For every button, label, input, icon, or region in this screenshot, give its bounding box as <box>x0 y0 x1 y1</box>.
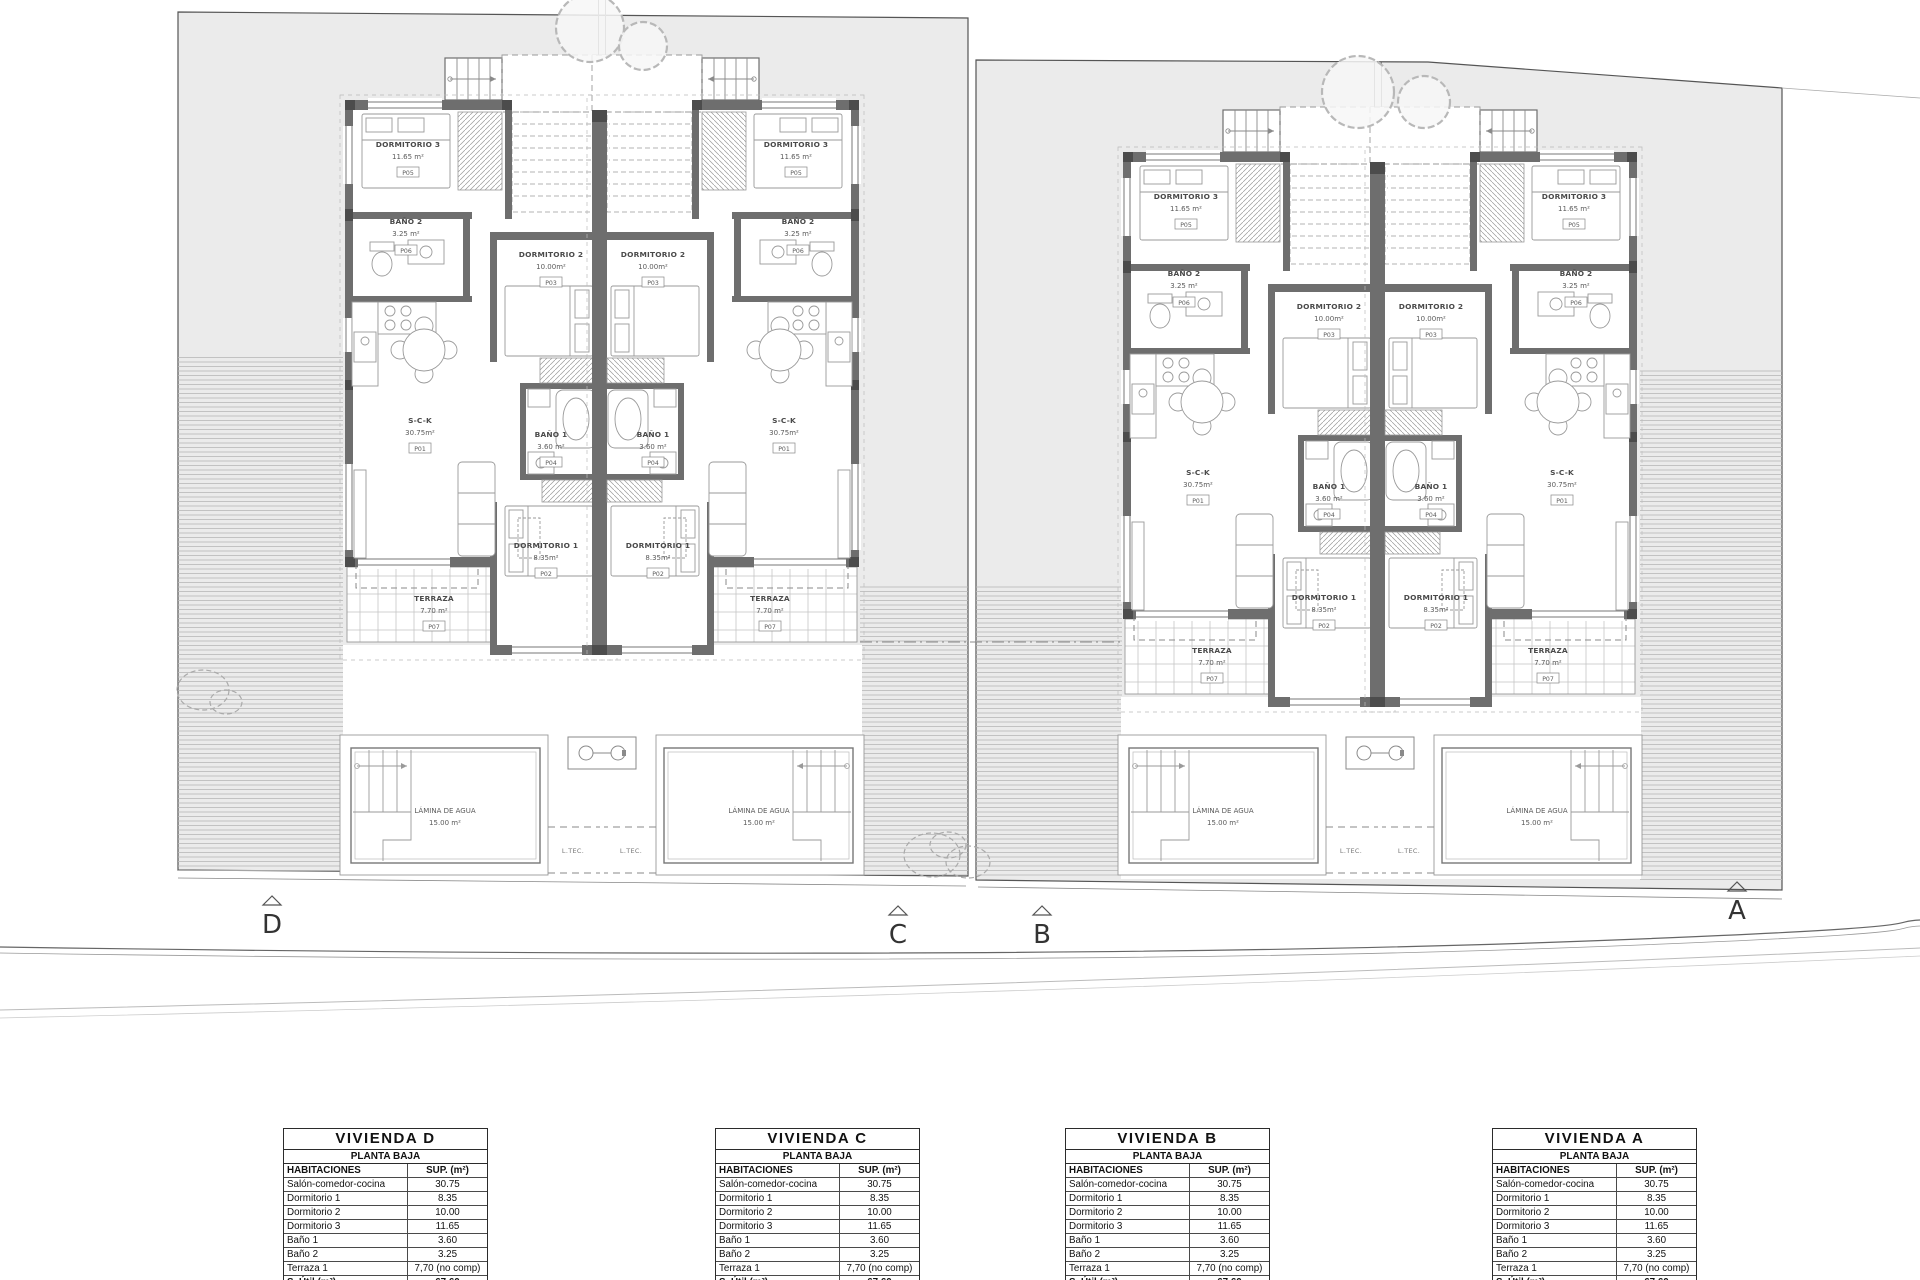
room-area: 3.25 m² <box>1170 282 1198 290</box>
room-label: S-C-K <box>1186 468 1210 477</box>
marker-triangle-icon <box>263 896 281 905</box>
room-tag: P06 <box>792 248 804 255</box>
table-row: Baño 13.60 <box>716 1234 919 1248</box>
room-sup-cell: 10.00 <box>1190 1206 1269 1219</box>
room-area: 8.35m² <box>645 554 670 562</box>
col-header-sup: SUP. (m²) <box>840 1164 919 1177</box>
ltec-label: L.TEC. <box>1398 847 1420 855</box>
room-name-cell: Dormitorio 2 <box>284 1206 408 1219</box>
room-sup-cell: 11.65 <box>1190 1220 1269 1233</box>
room-area: 30.75m² <box>1183 481 1213 489</box>
room-name-cell: Baño 2 <box>716 1248 840 1261</box>
table-title: VIVIENDA C <box>716 1129 919 1150</box>
room-label: DORMITORIO 2 <box>1399 302 1463 311</box>
table-row: Baño 23.25 <box>284 1248 487 1262</box>
room-label: S-C-K <box>408 416 432 425</box>
col-header-sup: SUP. (m²) <box>1617 1164 1696 1177</box>
table-row: Baño 13.60 <box>284 1234 487 1248</box>
room-name-cell: Baño 1 <box>716 1234 840 1247</box>
room-name-cell: Baño 1 <box>1493 1234 1617 1247</box>
col-header-habitaciones: HABITACIONES <box>1066 1164 1190 1177</box>
table-row: Terraza 17,70 (no comp) <box>1066 1262 1269 1276</box>
room-sup-cell: 11.65 <box>1617 1220 1696 1233</box>
total-label-cell: S. Útil (m²) <box>1493 1276 1617 1280</box>
table-row: Baño 13.60 <box>1066 1234 1269 1248</box>
section-markers: D C B A <box>262 882 1746 950</box>
tree-icon <box>1398 76 1450 128</box>
room-label: BAÑO 2 <box>1560 269 1593 278</box>
room-sup-cell: 11.65 <box>408 1220 487 1233</box>
col-header-habitaciones: HABITACIONES <box>716 1164 840 1177</box>
marker-label: C <box>889 920 907 950</box>
marker-triangle-icon <box>889 906 907 915</box>
room-label: DORMITORIO 1 <box>514 541 578 550</box>
room-tag: P03 <box>545 280 557 287</box>
room-sup-cell: 30.75 <box>408 1178 487 1191</box>
room-sup-cell: 3.25 <box>408 1248 487 1261</box>
room-sup-cell: 10.00 <box>1617 1206 1696 1219</box>
room-tag: P01 <box>1556 498 1568 505</box>
room-label: DORMITORIO 3 <box>1542 192 1606 201</box>
room-sup-cell: 3.60 <box>1617 1234 1696 1247</box>
room-name-cell: Dormitorio 2 <box>1493 1206 1617 1219</box>
table-total-row: S. Útil (m²)67.60 <box>284 1276 487 1280</box>
site-plan-drawing: D C B A DORMITORIO 3 11.65 m² P05 BAÑO 2… <box>0 0 1920 1280</box>
room-label: BAÑO 1 <box>1313 482 1346 491</box>
room-area: 3.60 m² <box>1417 495 1445 503</box>
room-area: 7.70 m² <box>420 607 448 615</box>
table-row: Salón-comedor-cocina30.75 <box>1066 1178 1269 1192</box>
boundary-extension-line <box>1782 88 1920 98</box>
room-area: 30.75m² <box>769 429 799 437</box>
room-name-cell: Dormitorio 1 <box>716 1192 840 1205</box>
room-label: TERRAZA <box>1528 646 1568 655</box>
table-row: Baño 13.60 <box>1493 1234 1696 1248</box>
room-name-cell: Dormitorio 1 <box>284 1192 408 1205</box>
table-row: Terraza 17,70 (no comp) <box>1493 1262 1696 1276</box>
vivienda-b-table: VIVIENDA B PLANTA BAJA HABITACIONES SUP.… <box>1065 1128 1270 1280</box>
table-row: Dormitorio 311.65 <box>1066 1220 1269 1234</box>
table-row: Salón-comedor-cocina30.75 <box>284 1178 487 1192</box>
room-sup-cell: 3.60 <box>1190 1234 1269 1247</box>
table-subtitle: PLANTA BAJA <box>284 1150 487 1164</box>
room-label: BAÑO 1 <box>1415 482 1448 491</box>
tree-icon <box>1322 56 1394 128</box>
room-area: 3.25 m² <box>392 230 420 238</box>
table-row: Baño 23.25 <box>716 1248 919 1262</box>
room-sup-cell: 3.60 <box>840 1234 919 1247</box>
room-name-cell: Dormitorio 3 <box>1066 1220 1190 1233</box>
room-sup-cell: 7,70 (no comp) <box>408 1262 487 1275</box>
ltec-label: L.TEC. <box>562 847 584 855</box>
room-area: 11.65 m² <box>1558 205 1590 213</box>
total-label-cell: S. Útil (m²) <box>716 1276 840 1280</box>
room-label: BAÑO 2 <box>782 217 815 226</box>
table-row: Dormitorio 311.65 <box>716 1220 919 1234</box>
table-row: Terraza 17,70 (no comp) <box>716 1262 919 1276</box>
room-label: DORMITORIO 2 <box>1297 302 1361 311</box>
room-label: DORMITORIO 1 <box>1292 593 1356 602</box>
room-area: 7.70 m² <box>1534 659 1562 667</box>
marker-c: C <box>889 906 907 950</box>
table-title: VIVIENDA A <box>1493 1129 1696 1150</box>
street-lines <box>0 878 1920 1018</box>
room-name-cell: Terraza 1 <box>1493 1262 1617 1275</box>
site-plan-sheet: D C B A DORMITORIO 3 11.65 m² P05 BAÑO 2… <box>0 0 1920 1280</box>
table-total-row: S. Útil (m²)67.60 <box>1066 1276 1269 1280</box>
room-label: DORMITORIO 2 <box>519 250 583 259</box>
room-name-cell: Salón-comedor-cocina <box>716 1178 840 1191</box>
ltec-label: L.TEC. <box>620 847 642 855</box>
col-header-habitaciones: HABITACIONES <box>1493 1164 1617 1177</box>
table-row: Baño 23.25 <box>1493 1248 1696 1262</box>
room-name-cell: Dormitorio 1 <box>1493 1192 1617 1205</box>
room-sup-cell: 7,70 (no comp) <box>840 1262 919 1275</box>
room-sup-cell: 30.75 <box>840 1178 919 1191</box>
vivienda-c-table: VIVIENDA C PLANTA BAJA HABITACIONES SUP.… <box>715 1128 920 1280</box>
table-row: Dormitorio 18.35 <box>716 1192 919 1206</box>
table-header-row: HABITACIONES SUP. (m²) <box>1066 1164 1269 1178</box>
room-area: 10.00m² <box>638 263 668 271</box>
table-row: Baño 23.25 <box>1066 1248 1269 1262</box>
room-name-cell: Salón-comedor-cocina <box>1066 1178 1190 1191</box>
room-area: 7.70 m² <box>1198 659 1226 667</box>
table-header-row: HABITACIONES SUP. (m²) <box>284 1164 487 1178</box>
room-area: 8.35m² <box>533 554 558 562</box>
room-label: TERRAZA <box>750 594 790 603</box>
total-value-cell: 67.60 <box>840 1276 919 1280</box>
room-sup-cell: 3.25 <box>840 1248 919 1261</box>
room-tag: P02 <box>1318 623 1330 630</box>
table-row: Salón-comedor-cocina30.75 <box>716 1178 919 1192</box>
marker-label: D <box>262 910 282 940</box>
room-tag: P06 <box>400 248 412 255</box>
room-tag: P01 <box>1192 498 1204 505</box>
total-value-cell: 67.60 <box>408 1276 487 1280</box>
ltec-label: L.TEC. <box>1340 847 1362 855</box>
marker-triangle-icon <box>1033 906 1051 915</box>
marker-d: D <box>262 896 282 940</box>
room-name-cell: Salón-comedor-cocina <box>284 1178 408 1191</box>
room-area: 11.65 m² <box>1170 205 1202 213</box>
room-sup-cell: 8.35 <box>840 1192 919 1205</box>
room-label: S-C-K <box>772 416 796 425</box>
room-area: 10.00m² <box>1416 315 1446 323</box>
room-label: DORMITORIO 1 <box>626 541 690 550</box>
table-row: Dormitorio 18.35 <box>1066 1192 1269 1206</box>
room-sup-cell: 7,70 (no comp) <box>1617 1262 1696 1275</box>
room-name-cell: Dormitorio 3 <box>284 1220 408 1233</box>
room-area: 3.25 m² <box>784 230 812 238</box>
pool-area: 15.00 m² <box>429 819 461 827</box>
room-name-cell: Salón-comedor-cocina <box>1493 1178 1617 1191</box>
pool-area: 15.00 m² <box>1207 819 1239 827</box>
room-name-cell: Baño 2 <box>1493 1248 1617 1261</box>
total-value-cell: 67.60 <box>1617 1276 1696 1280</box>
total-label-cell: S. Útil (m²) <box>1066 1276 1190 1280</box>
col-header-habitaciones: HABITACIONES <box>284 1164 408 1177</box>
pool-area: 15.00 m² <box>1521 819 1553 827</box>
room-tag: P05 <box>1180 222 1192 229</box>
room-name-cell: Dormitorio 3 <box>1493 1220 1617 1233</box>
room-label: BAÑO 2 <box>390 217 423 226</box>
room-name-cell: Dormitorio 1 <box>1066 1192 1190 1205</box>
room-label: DORMITORIO 3 <box>1154 192 1218 201</box>
pool-label: LÁMINA DE AGUA <box>1506 806 1567 815</box>
table-total-row: S. Útil (m²)67.60 <box>716 1276 919 1280</box>
room-label: DORMITORIO 3 <box>764 140 828 149</box>
room-tag: P01 <box>778 446 790 453</box>
vivienda-a-table: VIVIENDA A PLANTA BAJA HABITACIONES SUP.… <box>1492 1128 1697 1280</box>
pool-label: LÁMINA DE AGUA <box>728 806 789 815</box>
room-area: 3.25 m² <box>1562 282 1590 290</box>
room-label: TERRAZA <box>414 594 454 603</box>
room-tag: P07 <box>428 624 440 631</box>
table-total-row: S. Útil (m²)67.60 <box>1493 1276 1696 1280</box>
pool-label: LÁMINA DE AGUA <box>1192 806 1253 815</box>
table-subtitle: PLANTA BAJA <box>1493 1150 1696 1164</box>
room-name-cell: Dormitorio 2 <box>716 1206 840 1219</box>
room-label: BAÑO 2 <box>1168 269 1201 278</box>
room-label: BAÑO 1 <box>535 430 568 439</box>
room-sup-cell: 3.25 <box>1617 1248 1696 1261</box>
table-row: Dormitorio 311.65 <box>284 1220 487 1234</box>
room-tag: P06 <box>1570 300 1582 307</box>
marker-label: B <box>1033 920 1051 950</box>
room-tag: P04 <box>1425 512 1437 519</box>
table-row: Terraza 17,70 (no comp) <box>284 1262 487 1276</box>
room-label: S-C-K <box>1550 468 1574 477</box>
table-row: Dormitorio 210.00 <box>716 1206 919 1220</box>
room-tag: P01 <box>414 446 426 453</box>
room-area: 10.00m² <box>1314 315 1344 323</box>
room-name-cell: Dormitorio 3 <box>716 1220 840 1233</box>
table-row: Dormitorio 18.35 <box>1493 1192 1696 1206</box>
room-tag: P07 <box>1542 676 1554 683</box>
table-subtitle: PLANTA BAJA <box>1066 1150 1269 1164</box>
room-sup-cell: 30.75 <box>1617 1178 1696 1191</box>
room-tag: P02 <box>1430 623 1442 630</box>
pool-label: LÁMINA DE AGUA <box>414 806 475 815</box>
room-label: DORMITORIO 2 <box>621 250 685 259</box>
room-tag: P03 <box>647 280 659 287</box>
table-header-row: HABITACIONES SUP. (m²) <box>1493 1164 1696 1178</box>
room-tag: P07 <box>764 624 776 631</box>
marker-b: B <box>1033 906 1051 950</box>
room-area: 30.75m² <box>405 429 435 437</box>
room-tag: P03 <box>1323 332 1335 339</box>
room-name-cell: Baño 1 <box>1066 1234 1190 1247</box>
room-area: 3.60 m² <box>639 443 667 451</box>
room-sup-cell: 30.75 <box>1190 1178 1269 1191</box>
marker-label: A <box>1728 896 1746 926</box>
room-tag: P04 <box>1323 512 1335 519</box>
room-sup-cell: 7,70 (no comp) <box>1190 1262 1269 1275</box>
table-row: Salón-comedor-cocina30.75 <box>1493 1178 1696 1192</box>
room-sup-cell: 8.35 <box>408 1192 487 1205</box>
room-name-cell: Dormitorio 2 <box>1066 1206 1190 1219</box>
total-value-cell: 67.60 <box>1190 1276 1269 1280</box>
room-area: 3.60 m² <box>1315 495 1343 503</box>
room-area: 11.65 m² <box>392 153 424 161</box>
pool-area: 15.00 m² <box>743 819 775 827</box>
table-title: VIVIENDA D <box>284 1129 487 1150</box>
room-tag: P05 <box>790 170 802 177</box>
room-area: 8.35m² <box>1311 606 1336 614</box>
room-area: 3.60 m² <box>537 443 565 451</box>
room-name-cell: Baño 2 <box>284 1248 408 1261</box>
table-row: Dormitorio 311.65 <box>1493 1220 1696 1234</box>
table-row: Dormitorio 210.00 <box>284 1206 487 1220</box>
room-sup-cell: 11.65 <box>840 1220 919 1233</box>
total-label-cell: S. Útil (m²) <box>284 1276 408 1280</box>
table-row: Dormitorio 210.00 <box>1066 1206 1269 1220</box>
col-header-sup: SUP. (m²) <box>1190 1164 1269 1177</box>
table-subtitle: PLANTA BAJA <box>716 1150 919 1164</box>
room-sup-cell: 3.60 <box>408 1234 487 1247</box>
table-row: Dormitorio 18.35 <box>284 1192 487 1206</box>
room-sup-cell: 8.35 <box>1190 1192 1269 1205</box>
room-name-cell: Baño 2 <box>1066 1248 1190 1261</box>
room-sup-cell: 3.25 <box>1190 1248 1269 1261</box>
room-name-cell: Terraza 1 <box>716 1262 840 1275</box>
room-label: BAÑO 1 <box>637 430 670 439</box>
tree-icon <box>619 22 667 70</box>
room-name-cell: Terraza 1 <box>284 1262 408 1275</box>
room-area: 30.75m² <box>1547 481 1577 489</box>
room-area: 10.00m² <box>536 263 566 271</box>
room-label: DORMITORIO 3 <box>376 140 440 149</box>
room-area: 11.65 m² <box>780 153 812 161</box>
room-tag: P07 <box>1206 676 1218 683</box>
room-tag: P03 <box>1425 332 1437 339</box>
room-name-cell: Baño 1 <box>284 1234 408 1247</box>
room-tag: P05 <box>402 170 414 177</box>
room-sup-cell: 10.00 <box>408 1206 487 1219</box>
table-title: VIVIENDA B <box>1066 1129 1269 1150</box>
room-tag: P04 <box>647 460 659 467</box>
room-area: 7.70 m² <box>756 607 784 615</box>
table-row: Dormitorio 210.00 <box>1493 1206 1696 1220</box>
room-tag: P05 <box>1568 222 1580 229</box>
room-label: TERRAZA <box>1192 646 1232 655</box>
table-header-row: HABITACIONES SUP. (m²) <box>716 1164 919 1178</box>
vivienda-d-table: VIVIENDA D PLANTA BAJA HABITACIONES SUP.… <box>283 1128 488 1280</box>
room-sup-cell: 8.35 <box>1617 1192 1696 1205</box>
room-tag: P02 <box>540 571 552 578</box>
room-label: DORMITORIO 1 <box>1404 593 1468 602</box>
room-sup-cell: 10.00 <box>840 1206 919 1219</box>
room-tag: P06 <box>1178 300 1190 307</box>
room-name-cell: Terraza 1 <box>1066 1262 1190 1275</box>
room-tag: P02 <box>652 571 664 578</box>
col-header-sup: SUP. (m²) <box>408 1164 487 1177</box>
room-tag: P04 <box>545 460 557 467</box>
room-area: 8.35m² <box>1423 606 1448 614</box>
